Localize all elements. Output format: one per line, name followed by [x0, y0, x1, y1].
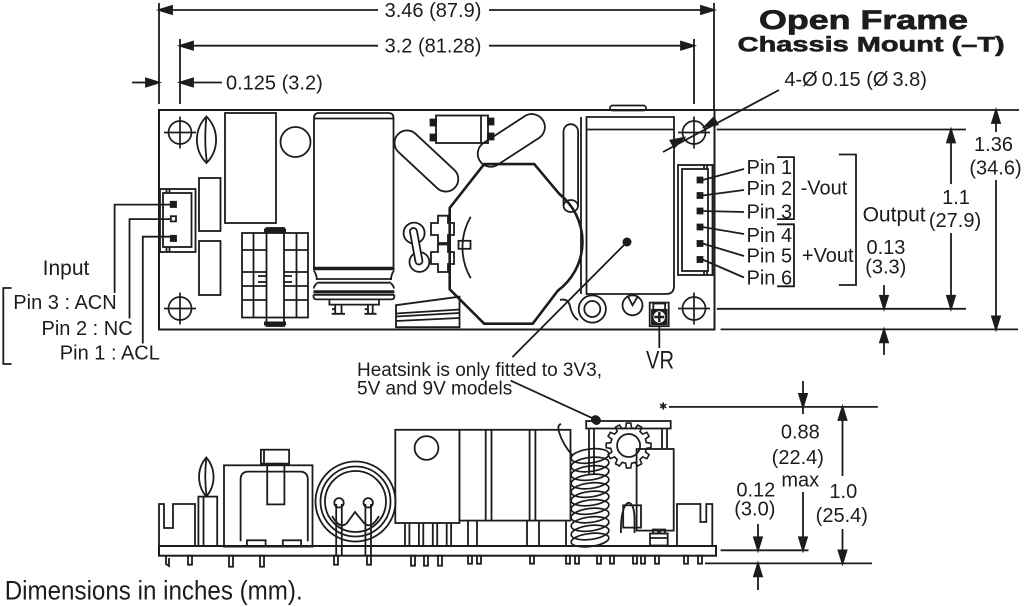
svg-text:4-Ø 0.15 (Ø 3.8): 4-Ø 0.15 (Ø 3.8)	[784, 69, 927, 91]
svg-text:VR: VR	[646, 347, 674, 375]
svg-text:-Vout: -Vout	[801, 177, 848, 199]
svg-text:1.36: 1.36	[974, 134, 1013, 156]
svg-text:(3.3): (3.3)	[865, 257, 906, 279]
svg-text:Pin 4: Pin 4	[747, 225, 793, 247]
svg-text:(3.0): (3.0)	[734, 498, 775, 520]
svg-text:0.13: 0.13	[867, 237, 906, 259]
svg-text:1.1: 1.1	[942, 187, 970, 209]
svg-text:Dimensions in inches (mm).: Dimensions in inches (mm).	[5, 576, 303, 606]
svg-text:(34.6): (34.6)	[969, 158, 1021, 180]
svg-text:0.125 (3.2): 0.125 (3.2)	[226, 73, 323, 95]
svg-text:Pin 1: Pin 1	[747, 157, 793, 179]
svg-text:Input: Input	[43, 257, 90, 280]
svg-text:3.46 (87.9): 3.46 (87.9)	[385, 0, 482, 22]
svg-text:(22.4): (22.4)	[772, 447, 824, 469]
svg-text:5V and 9V models: 5V and 9V models	[357, 379, 512, 400]
svg-text:+Vout: +Vout	[802, 245, 854, 267]
svg-text:1.0: 1.0	[829, 481, 857, 503]
svg-text:Pin 5: Pin 5	[747, 245, 793, 267]
svg-text:Pin 1 : ACL: Pin 1 : ACL	[60, 343, 160, 365]
svg-text:(27.9): (27.9)	[929, 210, 981, 232]
svg-text:Pin 3 : ACN: Pin 3 : ACN	[13, 292, 116, 314]
svg-text:Pin 6: Pin 6	[747, 268, 793, 290]
svg-text:3.2 (81.28): 3.2 (81.28)	[385, 36, 482, 58]
svg-text:Pin 2 : NC: Pin 2 : NC	[42, 318, 133, 340]
svg-text:(25.4): (25.4)	[816, 505, 868, 527]
svg-text:Pin 2: Pin 2	[747, 178, 793, 200]
svg-text:Open Frame: Open Frame	[759, 5, 968, 35]
svg-text:0.88: 0.88	[781, 422, 820, 444]
svg-text:max: max	[781, 470, 819, 492]
svg-text:Chassis Mount (–T): Chassis Mount (–T)	[738, 33, 1005, 57]
svg-text:Output: Output	[863, 204, 926, 227]
svg-text:Pin 3: Pin 3	[747, 202, 793, 224]
